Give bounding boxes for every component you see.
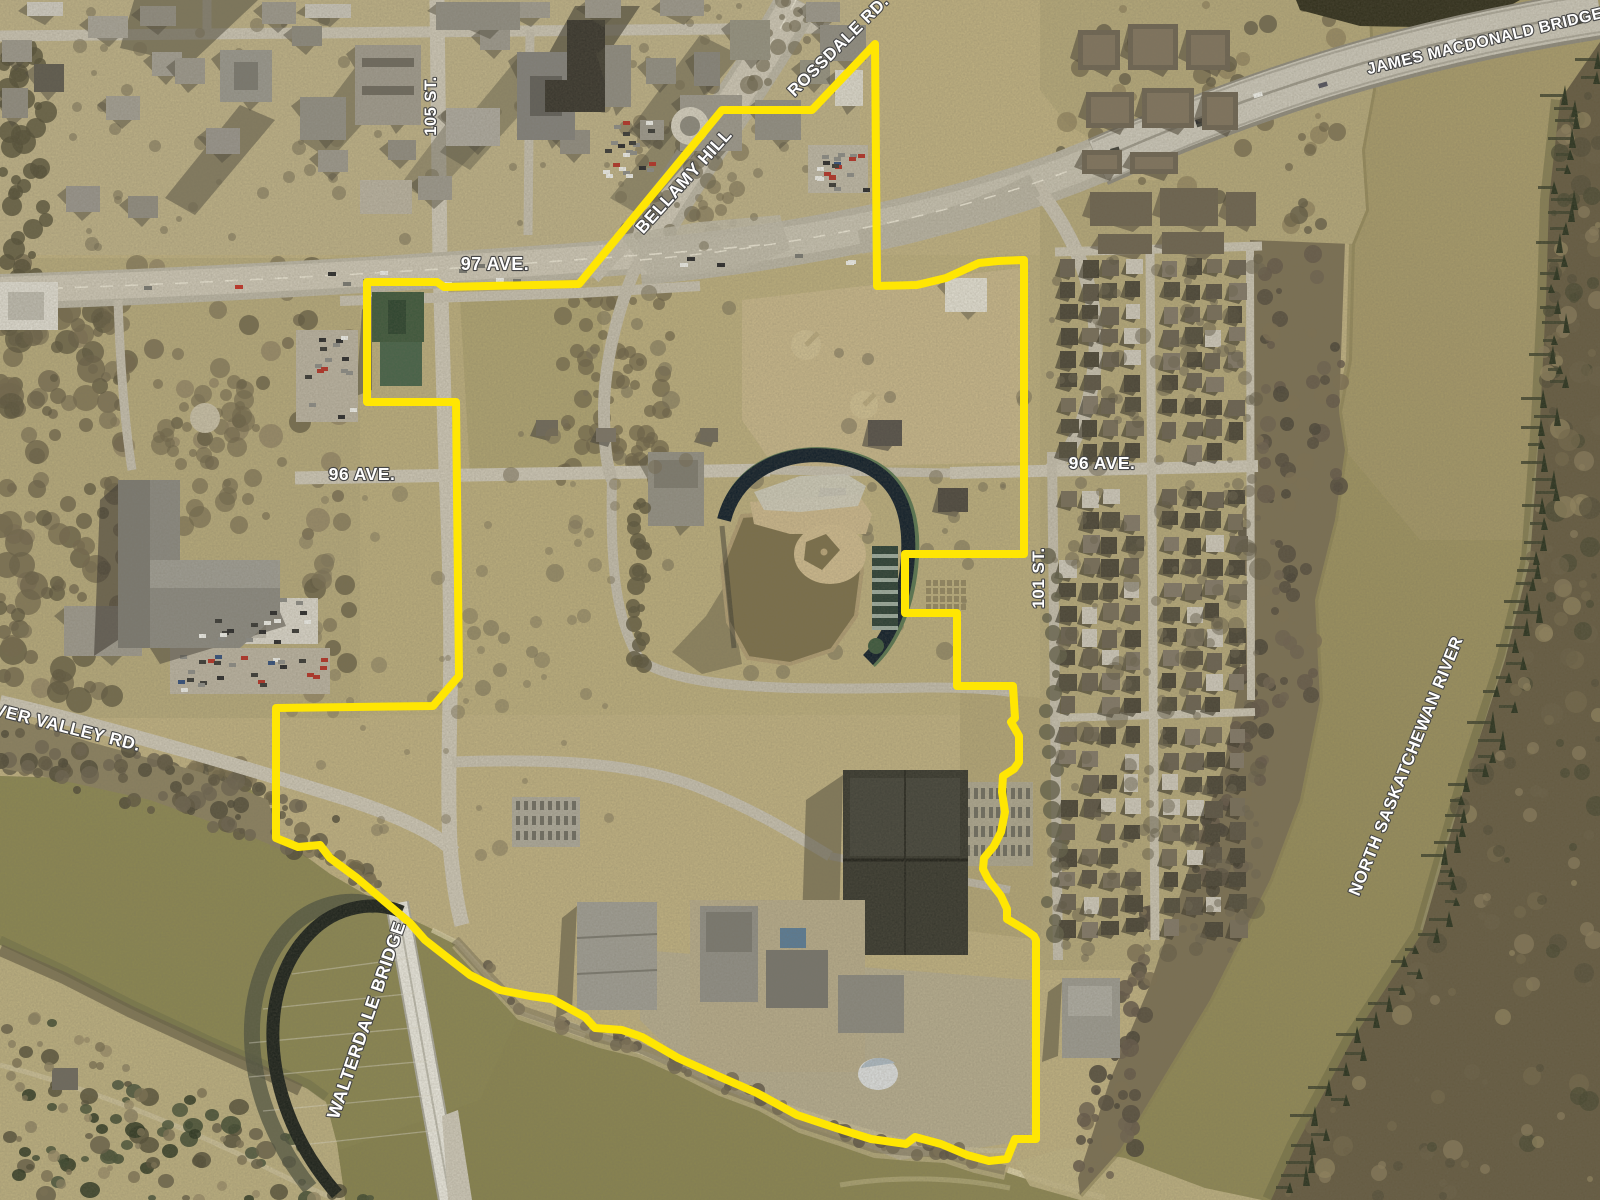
svg-text:96 AVE.: 96 AVE. xyxy=(329,464,396,484)
svg-text:105 ST.: 105 ST. xyxy=(422,76,440,135)
svg-text:96 AVE.: 96 AVE. xyxy=(1069,453,1136,473)
svg-text:97 AVE.: 97 AVE. xyxy=(461,254,530,274)
svg-text:101 ST.: 101 ST. xyxy=(1029,547,1048,608)
